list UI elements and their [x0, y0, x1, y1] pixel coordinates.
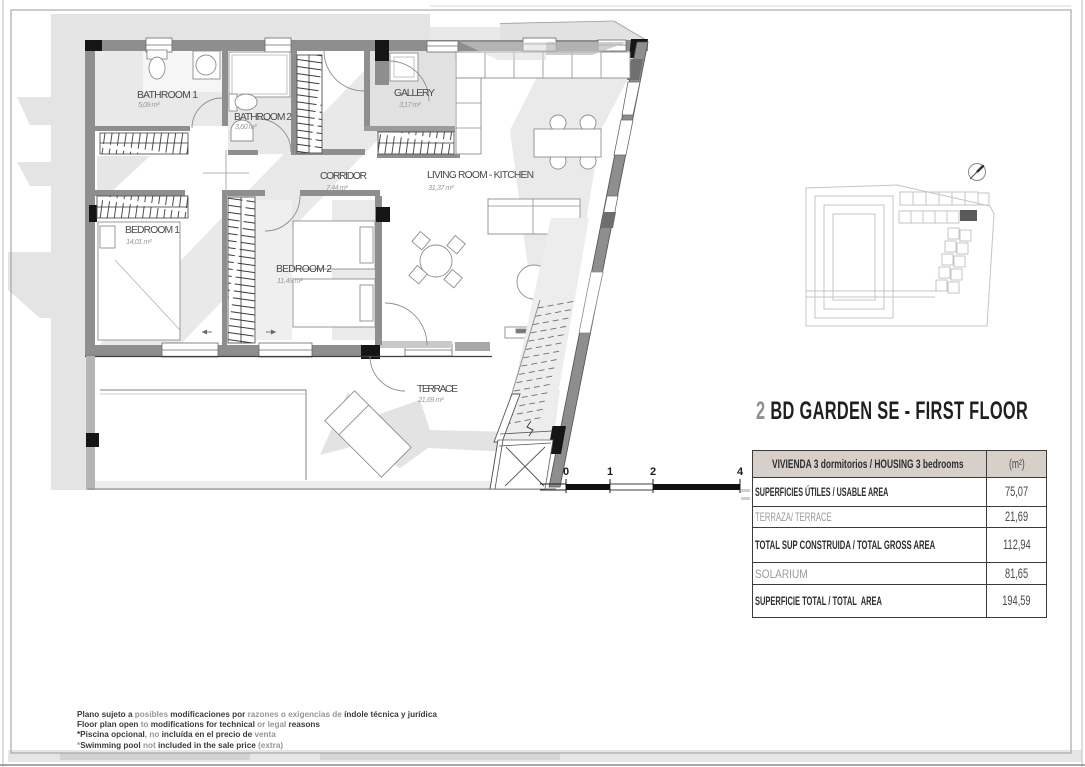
svg-text:0: 0 [563, 466, 569, 478]
svg-text:LIVING ROOM - KITCHEN: LIVING ROOM - KITCHEN [427, 170, 534, 181]
svg-text:2: 2 [650, 466, 656, 478]
svg-text:GALLERY: GALLERY [394, 88, 435, 99]
svg-text:BEDROOM 2: BEDROOM 2 [276, 264, 332, 275]
svg-text:5,09 m²: 5,09 m² [138, 100, 160, 109]
svg-text:BEDROOM 1: BEDROOM 1 [125, 225, 180, 236]
svg-text:14,01 m²: 14,01 m² [126, 237, 152, 246]
svg-text:TERRACE: TERRACE [417, 384, 458, 395]
svg-text:CORRIDOR: CORRIDOR [320, 171, 367, 182]
svg-text:11,49 m²: 11,49 m² [277, 276, 303, 285]
svg-text:7,44 m²: 7,44 m² [326, 183, 348, 192]
svg-text:1: 1 [607, 466, 613, 478]
svg-text:21,69 m²: 21,69 m² [417, 395, 444, 404]
svg-text:3,60 m²: 3,60 m² [235, 122, 257, 131]
svg-text:31,37 m²: 31,37 m² [428, 183, 454, 192]
svg-text:4: 4 [737, 466, 744, 478]
svg-text:3,17 m²: 3,17 m² [399, 100, 421, 109]
